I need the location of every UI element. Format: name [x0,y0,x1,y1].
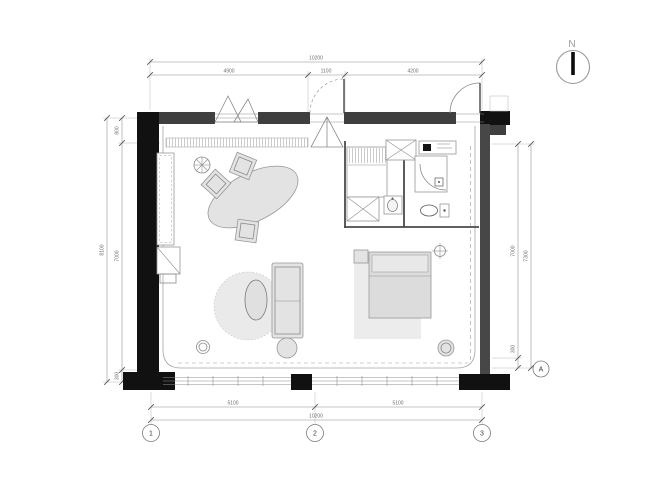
entry-door [310,79,344,147]
dim-top-overall: 10200 [309,56,323,62]
dim-top-seg2: 1100 [321,69,332,75]
wall-top-cap [480,111,510,125]
floor-lamp [197,341,210,354]
north-needle [571,52,575,75]
dim-right-bottom: 300 [511,345,517,354]
dim-left-seg-bottom: 300 [115,372,121,381]
pier-bottom-right [459,374,510,390]
dim-bottom-seg2: 5100 [392,401,403,407]
bathroom [344,140,479,228]
pier-bottom-center [291,374,312,390]
ceiling-fixture [432,243,448,259]
coffee-table [245,280,267,320]
dim-right-outer: 7300 [524,250,530,261]
console-desk [157,247,180,283]
dining-chair-3 [235,219,259,243]
wall-top-segment-b [258,112,310,124]
bedroom-stool [438,340,454,356]
entry-door-swing [310,79,344,113]
left-cabinets [157,153,180,283]
secondary-door-swing [450,83,480,113]
dimension-right: 7000 7300 300 [511,141,534,371]
wall-right [480,124,490,374]
top-window [215,96,258,122]
entry-threshold-triangle [311,117,343,147]
dimension-bottom: 5100 5100 10200 [148,401,485,423]
north-label: N [568,39,575,50]
dim-bottom-seg1: 5100 [227,401,238,407]
window-awning-triangle-2 [234,99,258,122]
dim-top-seg3: 4200 [407,69,418,75]
dim-top-seg1: 4900 [223,69,234,75]
dimension-top: 10200 4900 1100 4200 [147,56,485,78]
grid-bubble-A-label: A [539,367,544,374]
shower [415,156,447,192]
dimension-left: 8100 800 7000 300 [100,115,125,385]
north-symbol: N [557,39,590,84]
pouf [277,338,297,358]
grid-bubble-2-label: 2 [313,431,317,438]
nightstand [354,250,368,263]
washer-unit [347,197,379,221]
dim-bottom-overall: 10200 [309,414,323,420]
dim-left-seg-mid: 7000 [115,250,121,261]
pier-left [137,112,159,374]
floor-plan-canvas: 10200 4900 1100 4200 5100 5100 10200 810… [0,0,650,487]
bedroom [354,243,454,356]
counter [419,141,456,154]
dim-left-seg-top: 800 [115,126,121,135]
closet [347,147,387,197]
grid-bubble-3-label: 3 [480,431,484,438]
toilet [421,204,450,217]
floor-plan-drawing: 10200 4900 1100 4200 5100 5100 10200 810… [0,0,650,487]
adjacent-door-frame [490,96,508,111]
closet-hanging-clothes [348,148,386,163]
wall-top-segment-c [344,112,456,124]
dim-right-inner: 7000 [511,245,517,256]
living-dining [194,152,308,358]
grid-bubble-1-label: 1 [149,431,153,438]
sofa [272,263,303,338]
bed-pillows [372,255,428,272]
window-sill-band [166,138,308,147]
sink [384,196,402,214]
shaft [386,140,416,160]
dim-left-overall: 8100 [100,244,106,255]
counter-fixture [423,144,431,151]
plant-stool [194,157,210,173]
